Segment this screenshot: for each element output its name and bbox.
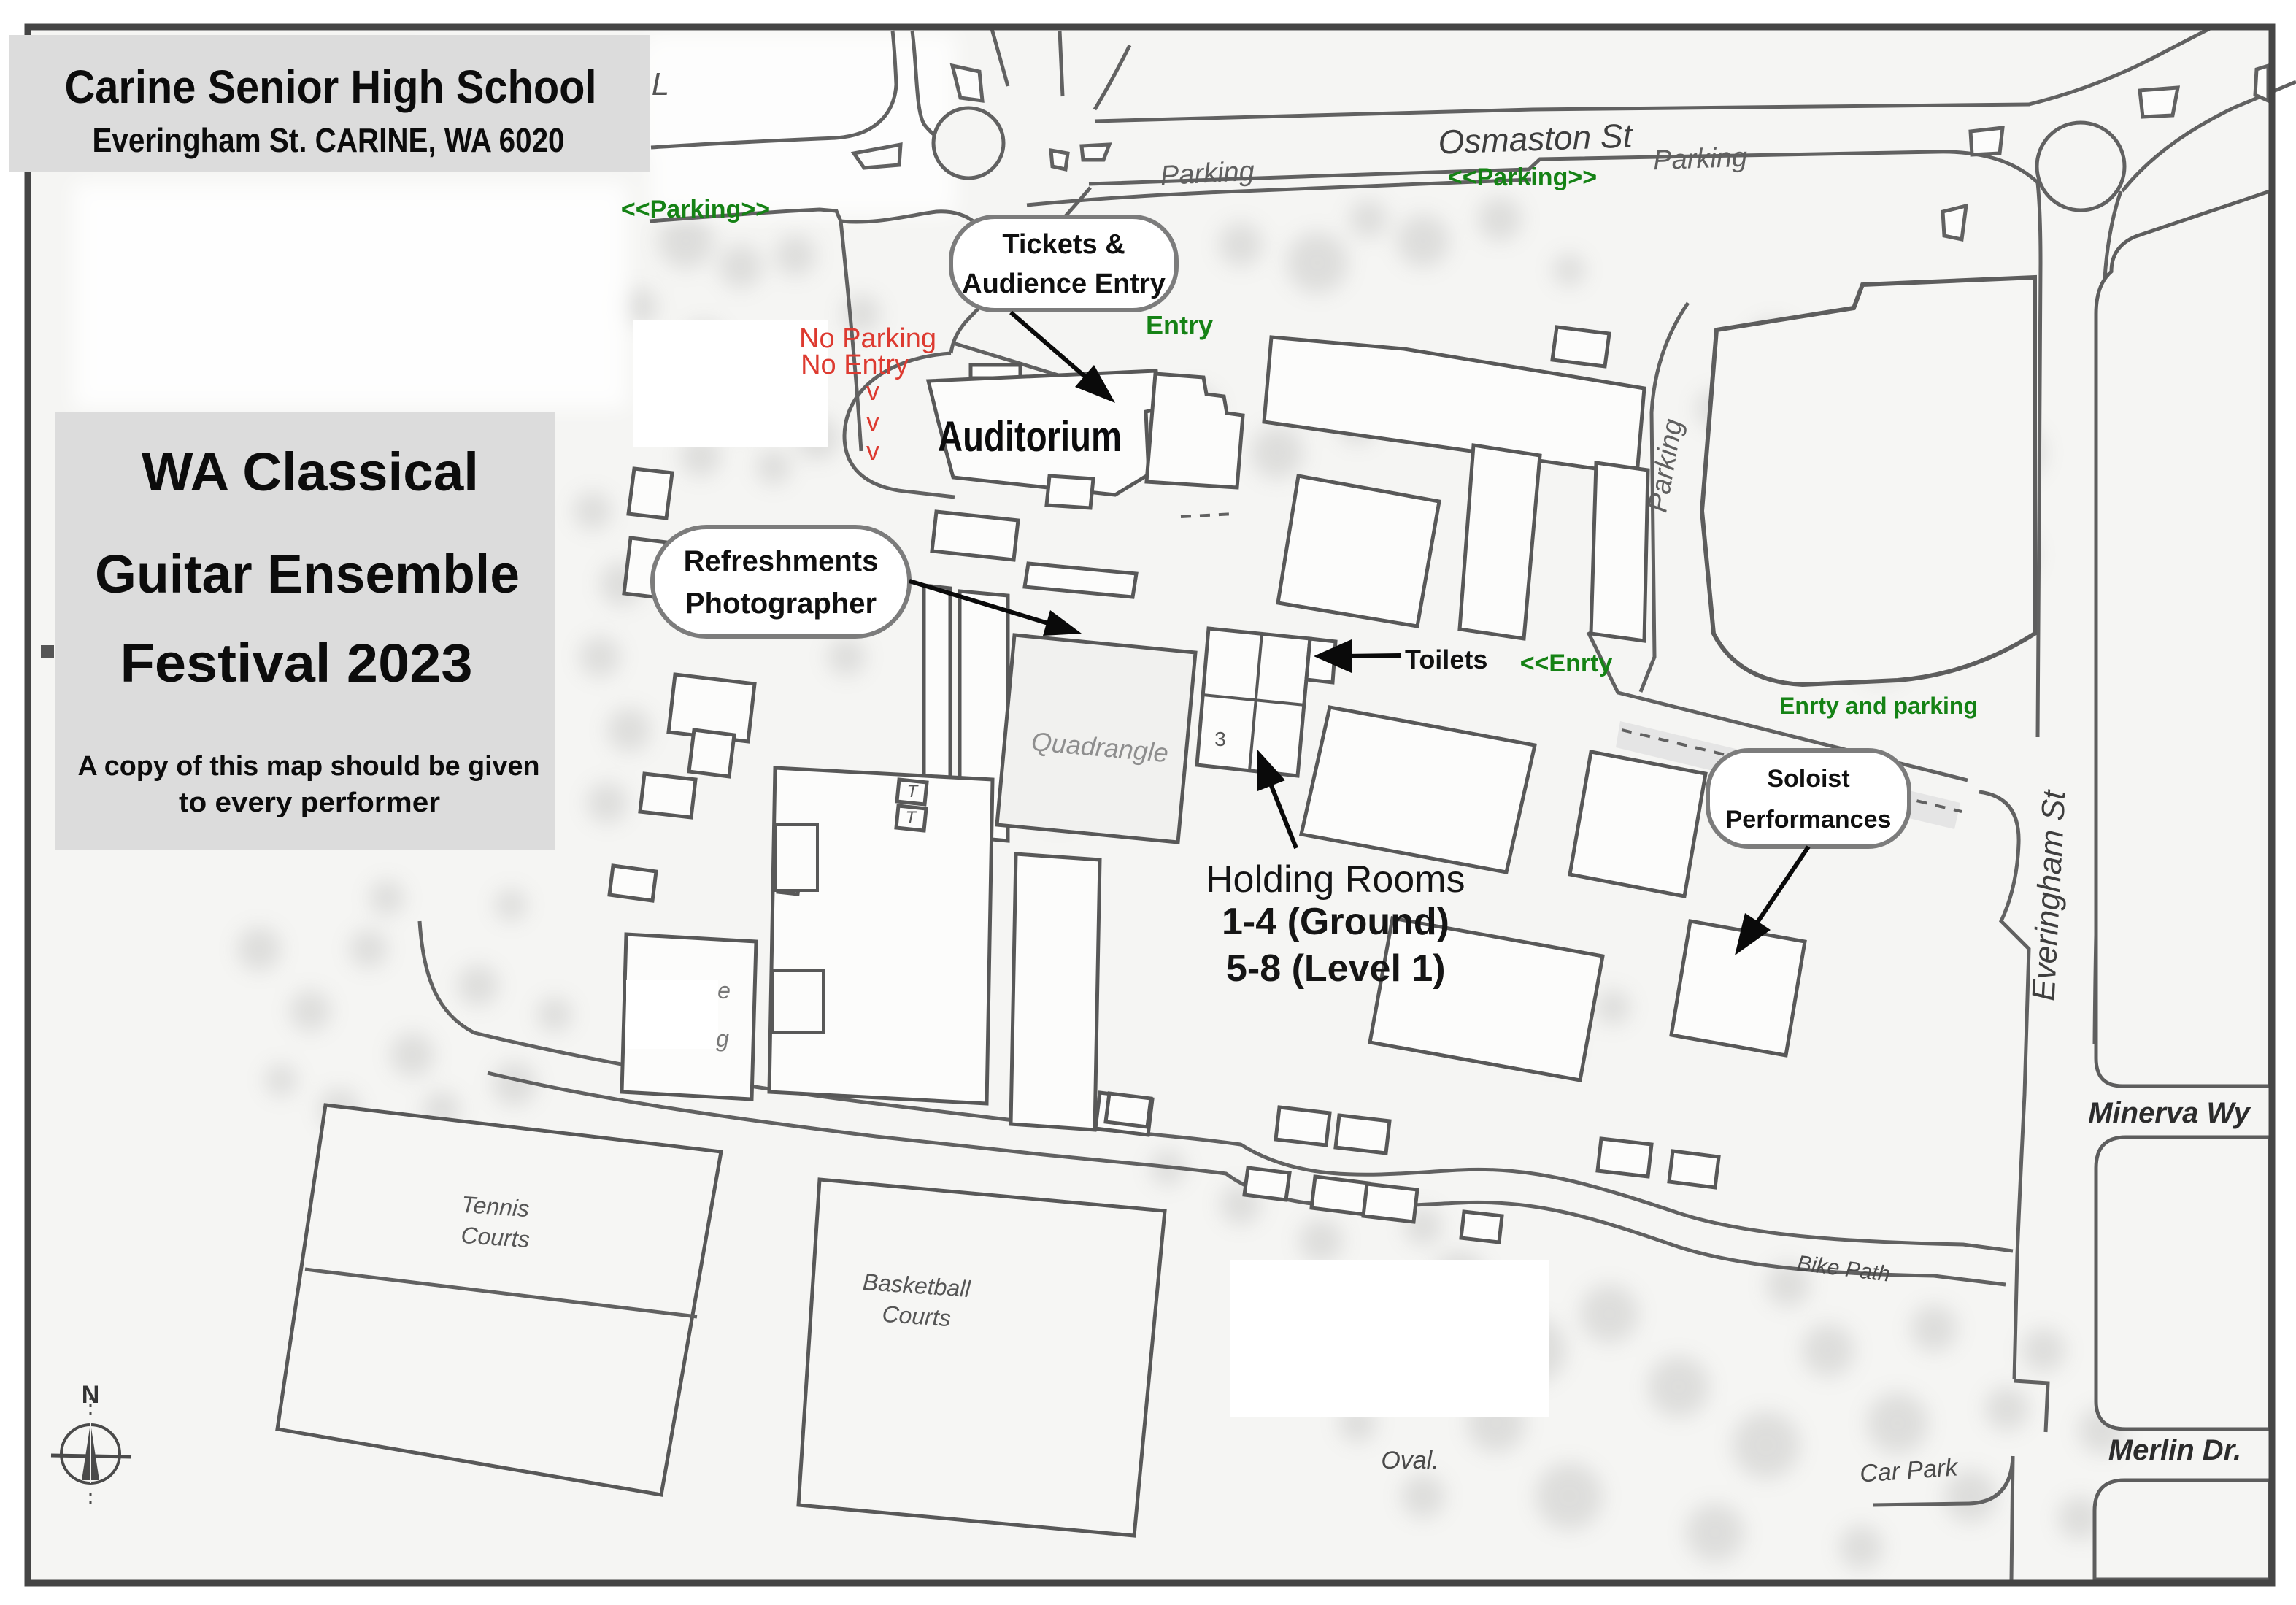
svg-text:Courts: Courts [461, 1222, 531, 1252]
svg-text:L: L [652, 66, 669, 102]
svg-text:3: 3 [1214, 728, 1226, 750]
svg-text:Parking: Parking [1160, 156, 1255, 192]
svg-text:Enrty and parking: Enrty and parking [1779, 693, 1978, 719]
svg-text:No Entry: No Entry [801, 350, 909, 380]
svg-text:N: N [82, 1381, 100, 1409]
svg-text:Soloist: Soloist [1767, 765, 1849, 793]
svg-text:v: v [866, 376, 879, 406]
svg-text:Photographer: Photographer [685, 588, 877, 620]
svg-text:<<Parking>>: <<Parking>> [621, 196, 770, 223]
svg-text:e: e [717, 977, 731, 1004]
svg-text:Toilets: Toilets [1405, 644, 1487, 674]
svg-text:g: g [716, 1025, 729, 1052]
svg-text:T: T [906, 808, 918, 828]
svg-text:Everingham St. CARINE, WA 6020: Everingham St. CARINE, WA 6020 [93, 121, 565, 159]
svg-text:Entry: Entry [1146, 310, 1213, 340]
svg-text:Parking: Parking [1652, 142, 1747, 176]
svg-text:Tennis: Tennis [461, 1191, 530, 1222]
svg-text:v: v [866, 407, 879, 436]
svg-text:T: T [907, 782, 920, 801]
svg-text:to every performer: to every performer [179, 788, 440, 818]
svg-text:Merlin Dr.: Merlin Dr. [2108, 1434, 2241, 1466]
svg-text:Holding Rooms: Holding Rooms [1206, 858, 1465, 901]
svg-text:Festival 2023: Festival 2023 [120, 633, 473, 693]
svg-text:Oval.: Oval. [1381, 1447, 1438, 1474]
svg-text:1-4 (Ground): 1-4 (Ground) [1222, 901, 1449, 943]
svg-text:Courts: Courts [882, 1301, 952, 1331]
svg-text:Minerva Wy: Minerva Wy [2088, 1097, 2251, 1129]
svg-text:<<Enrty: <<Enrty [1520, 650, 1613, 677]
svg-text:Audience Entry: Audience Entry [962, 269, 1166, 299]
svg-text:Carine Senior High School: Carine Senior High School [65, 61, 597, 113]
svg-text:v: v [866, 436, 879, 466]
svg-text:5-8 (Level 1): 5-8 (Level 1) [1226, 947, 1446, 990]
svg-text:Osmaston St: Osmaston St [1438, 116, 1635, 161]
svg-text:Refreshments: Refreshments [684, 545, 879, 577]
svg-text:Tickets &: Tickets & [1002, 229, 1125, 260]
svg-text:WA Classical: WA Classical [142, 442, 479, 502]
svg-text:<<Parking>>: <<Parking>> [1448, 163, 1597, 191]
svg-text:Guitar Ensemble: Guitar Ensemble [95, 544, 520, 604]
svg-text:Performances: Performances [1726, 806, 1892, 834]
svg-text:A copy of this map should be g: A copy of this map should be given [78, 751, 540, 782]
svg-text:Auditorium: Auditorium [938, 413, 1122, 461]
